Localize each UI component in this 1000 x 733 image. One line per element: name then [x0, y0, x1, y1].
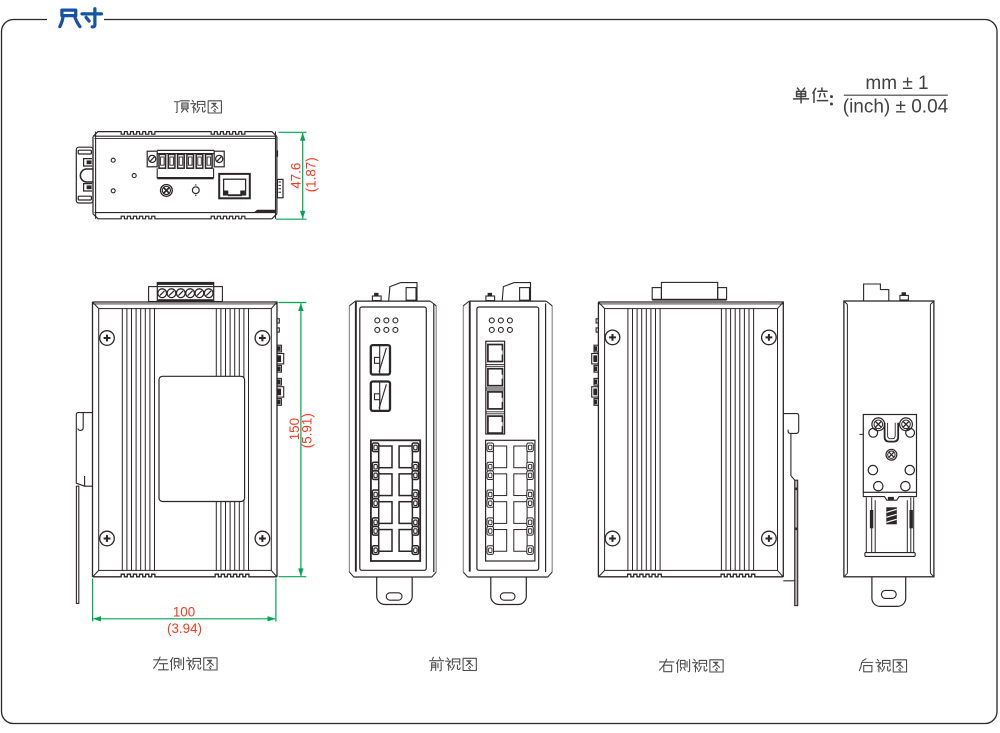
svg-text:47.6: 47.6	[288, 163, 303, 189]
svg-text:(3.94): (3.94)	[167, 621, 202, 636]
svg-text:(5.91): (5.91)	[300, 413, 315, 448]
svg-text:(inch) ± 0.04: (inch) ± 0.04	[843, 97, 949, 118]
svg-text:100: 100	[173, 605, 195, 620]
svg-text:(1.87): (1.87)	[303, 157, 318, 192]
svg-text:mm ± 1: mm ± 1	[865, 73, 928, 94]
